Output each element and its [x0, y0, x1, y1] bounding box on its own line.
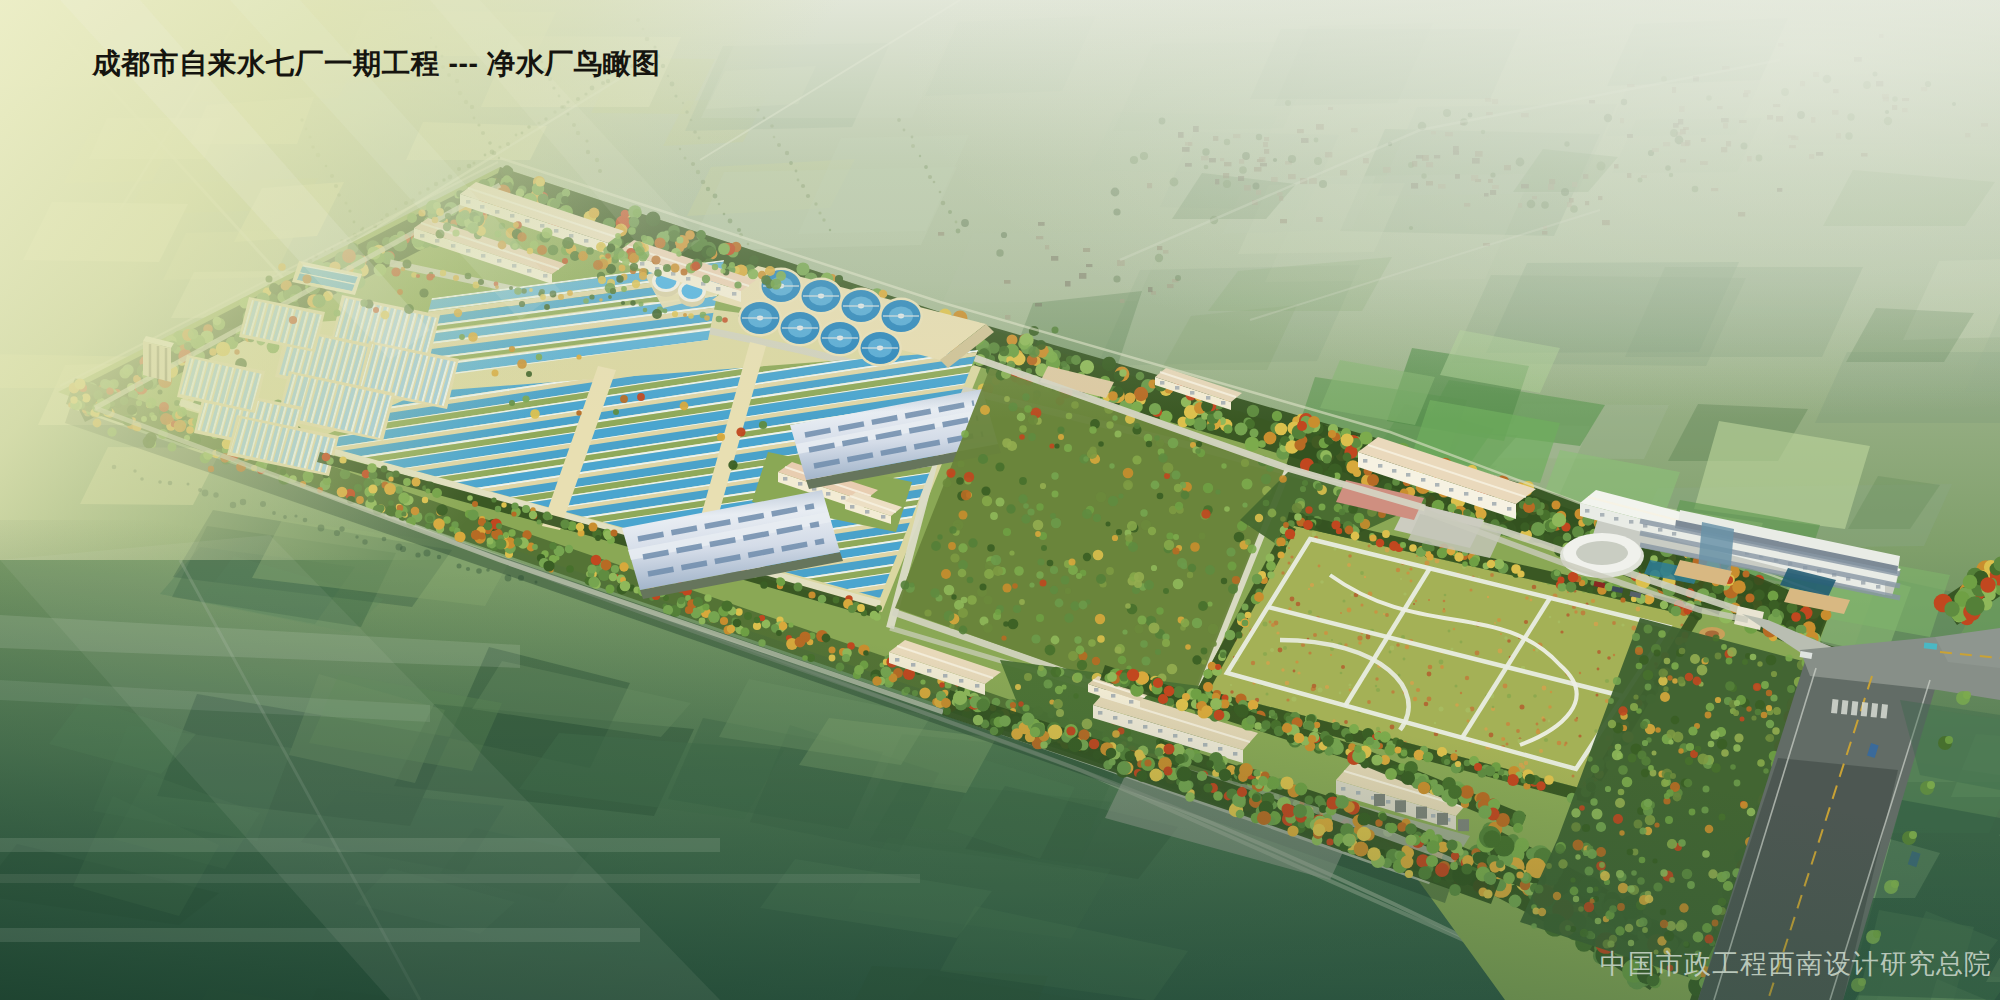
svg-text:中国市政工程西南设计研究总院: 中国市政工程西南设计研究总院 — [1600, 949, 1992, 979]
svg-text:成都市自来水七厂一期工程 --- 净水厂鸟瞰图: 成都市自来水七厂一期工程 --- 净水厂鸟瞰图 — [91, 47, 661, 79]
